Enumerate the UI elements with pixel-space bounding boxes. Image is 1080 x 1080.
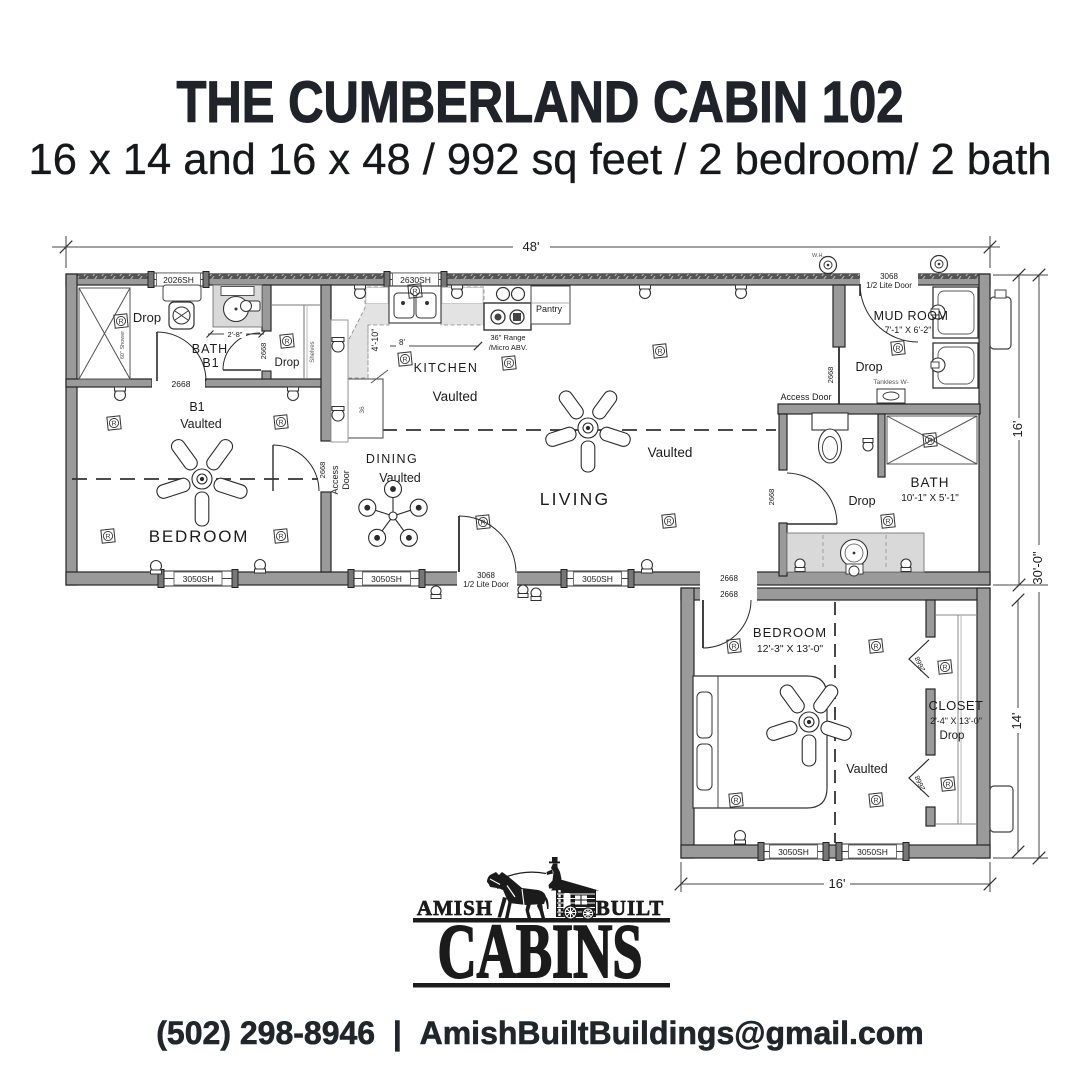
svg-text:CABINS: CABINS [437,910,642,994]
